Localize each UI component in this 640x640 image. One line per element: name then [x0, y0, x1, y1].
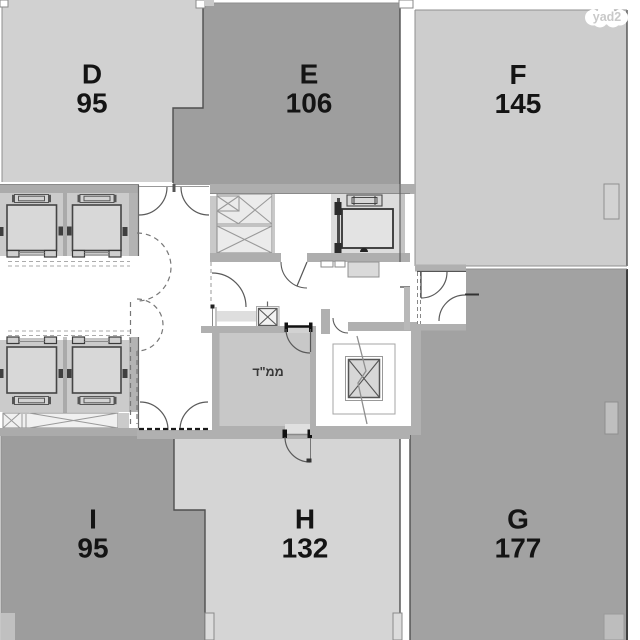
- svg-text:E: E: [300, 59, 319, 90]
- svg-text:145: 145: [495, 88, 542, 119]
- svg-text:yad2: yad2: [593, 10, 622, 24]
- svg-text:F: F: [509, 59, 526, 90]
- svg-text:ממ"ד: ממ"ד: [252, 365, 283, 379]
- svg-text:177: 177: [495, 533, 542, 564]
- svg-text:D: D: [82, 59, 102, 90]
- svg-text:106: 106: [286, 88, 333, 119]
- svg-text:H: H: [295, 504, 315, 535]
- svg-text:95: 95: [77, 533, 108, 564]
- svg-text:I: I: [89, 504, 97, 535]
- svg-text:95: 95: [76, 88, 107, 119]
- svg-text:132: 132: [282, 533, 329, 564]
- svg-text:G: G: [507, 504, 529, 535]
